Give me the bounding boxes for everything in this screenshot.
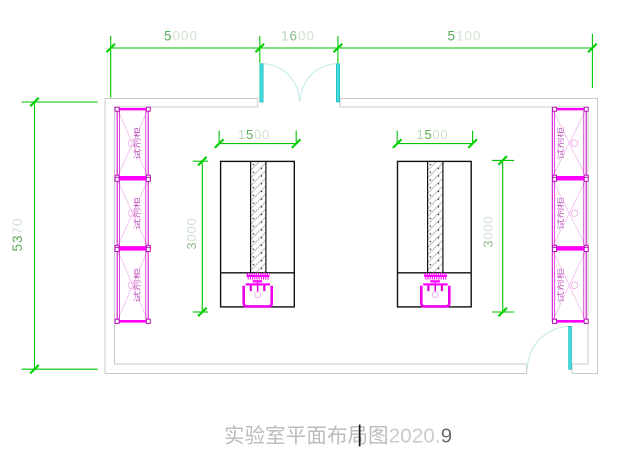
svg-text:实验室平面布局图2020.9: 实验室平面布局图2020.9 xyxy=(224,425,452,448)
svg-text:1600: 1600 xyxy=(281,29,315,44)
svg-text:5370: 5370 xyxy=(10,217,25,251)
svg-text:1500: 1500 xyxy=(416,127,448,142)
svg-text:5100: 5100 xyxy=(447,29,481,44)
svg-text:5000: 5000 xyxy=(164,29,198,44)
svg-text:3000: 3000 xyxy=(480,215,495,247)
svg-text:1500: 1500 xyxy=(238,127,270,142)
svg-text:试剂柜: 试剂柜 xyxy=(133,127,141,160)
svg-text:试剂柜: 试剂柜 xyxy=(556,127,564,160)
svg-text:3000: 3000 xyxy=(184,217,199,249)
